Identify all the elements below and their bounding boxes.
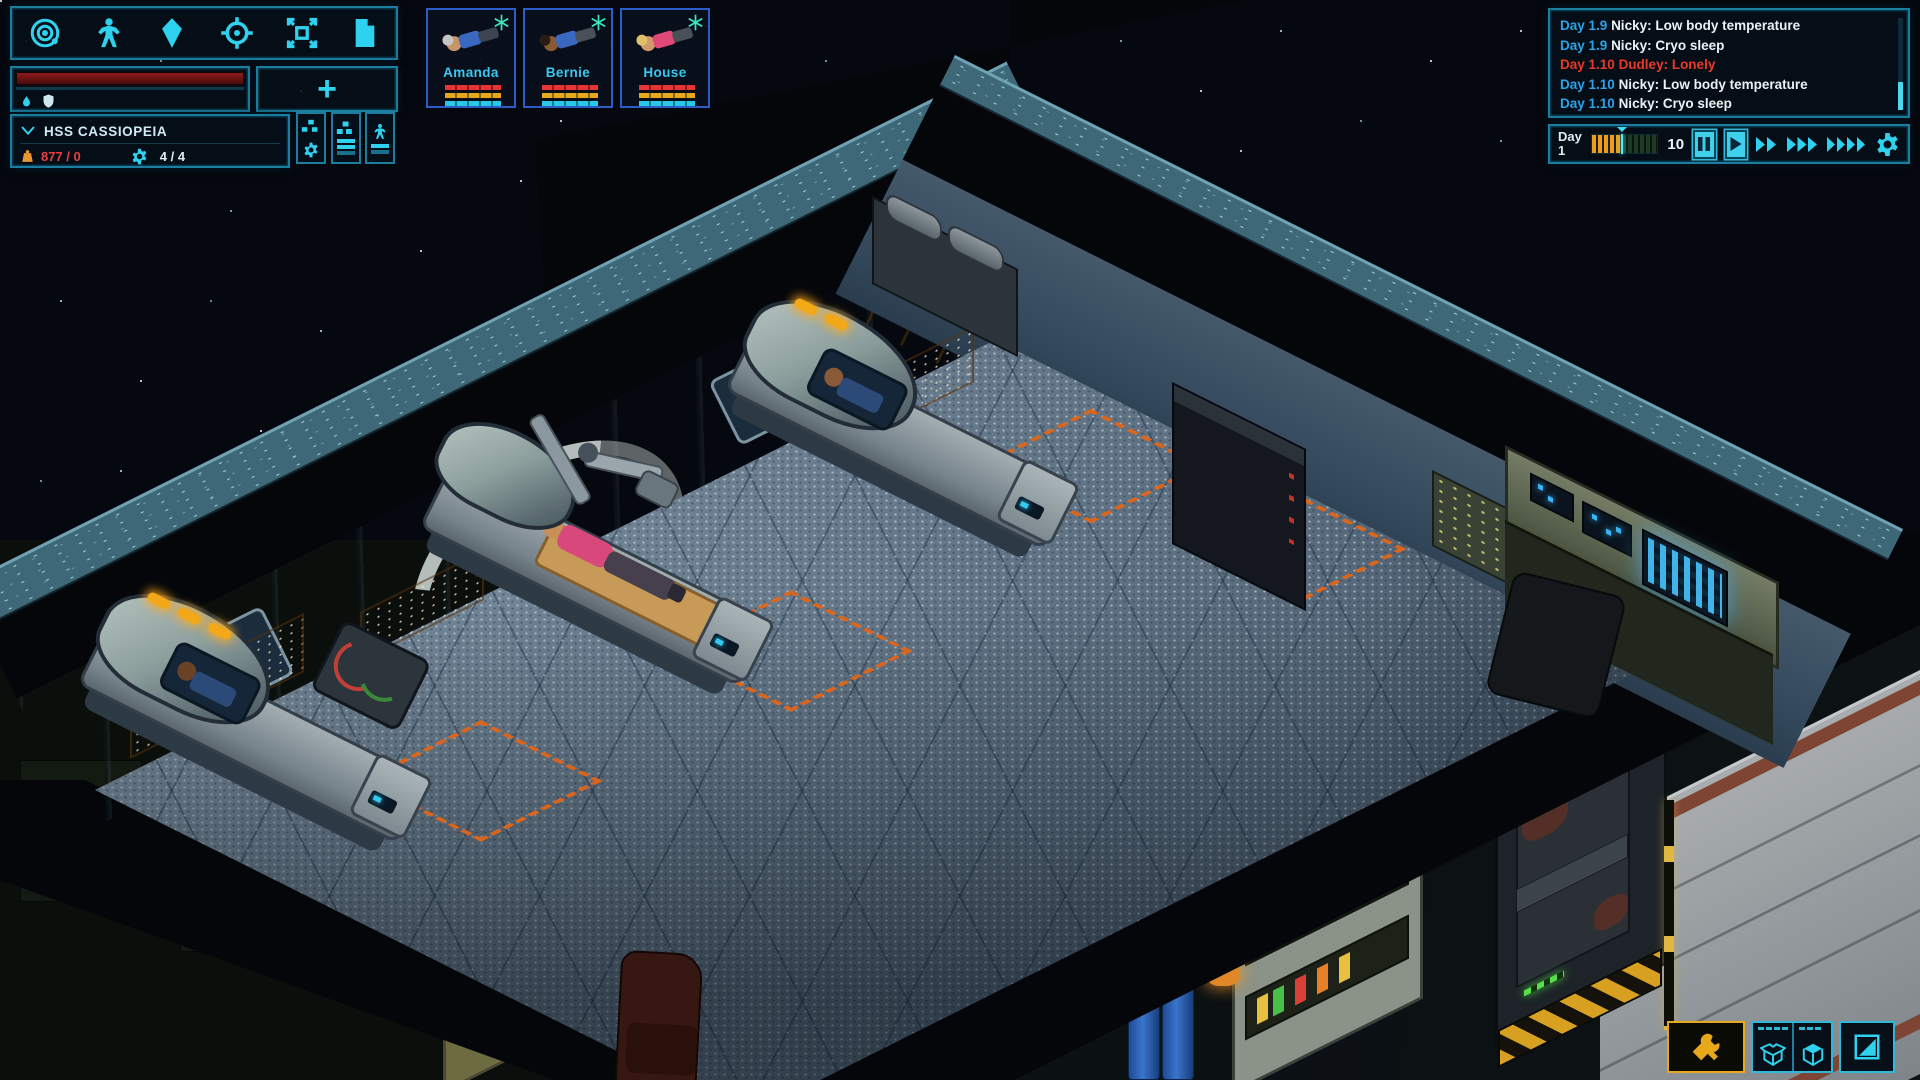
- game-screen: + HSS CASSIOPEIA 877 / 0 4 / 4: [0, 0, 1920, 1080]
- main-toolbar: [10, 6, 398, 60]
- expand-view-icon[interactable]: [284, 15, 320, 51]
- chair[interactable]: [615, 950, 704, 1080]
- speed-2x-button[interactable]: [1756, 137, 1778, 152]
- speed-3x-button[interactable]: [1787, 137, 1818, 152]
- crew-card-house[interactable]: House: [620, 8, 710, 108]
- crew-card-row: Amanda Bernie: [426, 8, 710, 108]
- crew-icon[interactable]: [92, 16, 126, 50]
- droplet-icon: [20, 94, 33, 109]
- crew-name: House: [622, 65, 708, 80]
- ship-panel-header[interactable]: HSS CASSIOPEIA: [20, 119, 280, 144]
- day-progress-bar[interactable]: [1591, 134, 1659, 154]
- facilities-overview-button[interactable]: [296, 112, 326, 164]
- door-frame-lights: [1664, 800, 1674, 1030]
- day-counter: Day 1: [1558, 130, 1582, 157]
- hour-value: 10: [1667, 136, 1684, 153]
- crystal-resources-icon[interactable]: [155, 16, 189, 50]
- storage-overview-button[interactable]: [331, 112, 361, 164]
- play-button[interactable]: [1725, 130, 1747, 159]
- event-log-row[interactable]: Day 1.10 Nicky: Low body temperature: [1560, 75, 1898, 95]
- crew-card-amanda[interactable]: Amanda: [426, 8, 516, 108]
- crew-slots-value: 4 / 4: [160, 149, 185, 164]
- container-view-buttons: [1751, 1021, 1833, 1073]
- crew-sprite: [442, 21, 502, 58]
- event-log: Day 1.9 Nicky: Low body temperature Day …: [1548, 8, 1910, 118]
- ship-weight-value: 877 / 0: [41, 149, 81, 164]
- day-progress-rest: [1622, 135, 1657, 153]
- filled-corner-square-icon: [1852, 1032, 1882, 1062]
- shield-icon: [41, 93, 56, 109]
- wrench-icon: [1690, 1031, 1722, 1063]
- crew-name: Bernie: [525, 65, 611, 80]
- deconstruct-tool-button[interactable]: [1667, 1021, 1745, 1073]
- crew-sprite: [636, 21, 696, 58]
- scrollbar-thumb[interactable]: [1898, 82, 1903, 110]
- crew-card-bernie[interactable]: Bernie: [523, 8, 613, 108]
- crew-name: Amanda: [428, 65, 514, 80]
- ship-name: HSS CASSIOPEIA: [44, 124, 167, 139]
- pause-button[interactable]: [1693, 130, 1715, 159]
- report-icon[interactable]: [349, 17, 381, 49]
- speed-4x-button[interactable]: [1827, 137, 1866, 152]
- capacity-dashes: [1799, 1027, 1821, 1030]
- crew-status-bars: [639, 85, 695, 109]
- time-panel: Day 1 10: [1548, 124, 1910, 164]
- ship-status-bar: [10, 66, 250, 112]
- event-log-scrollbar[interactable]: [1898, 18, 1903, 110]
- weight-icon: [20, 149, 35, 163]
- time-marker: [1621, 134, 1623, 154]
- closed-container-view-button[interactable]: [1792, 1023, 1831, 1071]
- day-progress-fill: [1592, 135, 1622, 153]
- crew-sprite: [539, 21, 599, 58]
- closed-box-icon: [1800, 1041, 1826, 1067]
- target-icon[interactable]: [219, 15, 255, 51]
- starfield: [0, 0, 2, 2]
- chevron-down-icon: [20, 125, 36, 137]
- draw-area-tool-button[interactable]: [1839, 1021, 1895, 1073]
- event-log-row[interactable]: Day 1.10 Dudley: Lonely: [1560, 55, 1898, 75]
- status-divider: [16, 87, 244, 90]
- capacity-dashes: [1758, 1027, 1788, 1030]
- event-log-row[interactable]: Day 1.9 Nicky: Low body temperature: [1560, 16, 1898, 36]
- hull-health-bar: [16, 72, 244, 85]
- gear-plus-icon: [131, 148, 148, 165]
- event-log-row[interactable]: Day 1.10 Nicky: Cryo sleep: [1560, 94, 1898, 114]
- add-ship-button[interactable]: +: [256, 66, 398, 112]
- open-container-view-button[interactable]: [1753, 1023, 1792, 1071]
- plus-icon: +: [317, 74, 337, 104]
- open-box-icon: [1760, 1041, 1786, 1067]
- gear-icon: [303, 142, 319, 158]
- orbit-view-icon[interactable]: [27, 15, 63, 51]
- time-settings-gear[interactable]: [1875, 132, 1900, 157]
- crew-overview-button[interactable]: [365, 112, 395, 164]
- ship-panel: HSS CASSIOPEIA 877 / 0 4 / 4: [10, 114, 290, 168]
- time-marker-triangle: [1617, 127, 1627, 137]
- event-log-row[interactable]: Day 1.9 Nicky: Cryo sleep: [1560, 36, 1898, 56]
- crew-status-bars: [445, 85, 501, 109]
- crew-status-bars: [542, 85, 598, 109]
